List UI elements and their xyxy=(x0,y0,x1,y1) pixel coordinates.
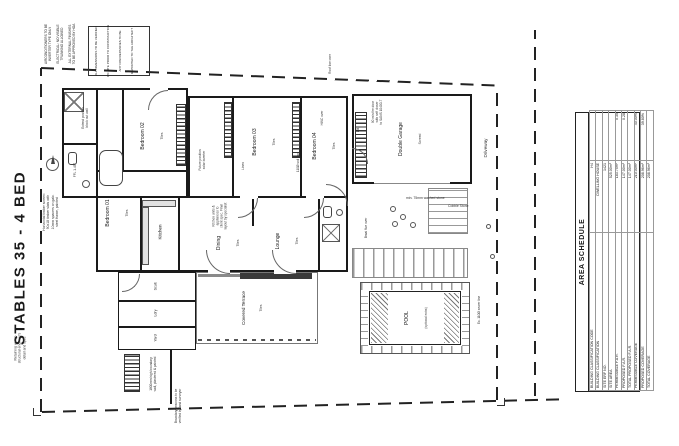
wall xyxy=(178,198,180,270)
area-schedule-title: AREA SCHEDULE xyxy=(576,113,589,391)
wall xyxy=(96,88,98,198)
site-boundary-left xyxy=(40,68,42,412)
room-label-driveway: Driveway xyxy=(483,139,489,158)
micro-note: Future position solar inverter xyxy=(198,149,206,170)
room-name: Bedroom 02 xyxy=(140,122,147,149)
wall xyxy=(62,143,96,145)
north-arrow-needle xyxy=(51,155,55,164)
room-label-garage: Double Garage Screed xyxy=(385,122,435,156)
room-name: Covered Terrace xyxy=(241,291,247,325)
room-label-terrace: Covered Terrace Tiles xyxy=(229,291,275,325)
note-retaining-wall: Retaining wall to structural engineer's … xyxy=(13,333,26,363)
schedule-row: TOTAL COVERAGE208.96m² xyxy=(647,111,653,391)
micro-note: Extend position block out wall xyxy=(81,107,89,129)
room-finish: Tiles xyxy=(236,236,240,250)
basin xyxy=(336,209,343,216)
micro-note: Linen xyxy=(241,162,245,170)
note-washed-stone: min. 75mm washed stone xyxy=(406,196,445,200)
room-finish: Tiles xyxy=(160,122,164,149)
room-label-bedroom04: Bedroom 04 Tiles xyxy=(299,132,349,159)
stepping-stone xyxy=(410,222,416,228)
street-boundary xyxy=(534,30,536,396)
kitchen-counter xyxy=(142,200,176,207)
pool-paver-band xyxy=(462,290,469,346)
room-label-yard: Yard xyxy=(154,334,159,341)
schedule-label: TOTAL COVERAGE xyxy=(647,233,653,391)
note-kitchen-spec: Kitchen units & appliances to client spe… xyxy=(212,203,229,230)
room-finish: Tiles xyxy=(259,291,263,325)
stepping-stone xyxy=(392,221,398,227)
room-finish: Tiles xyxy=(295,233,299,250)
wardrobe xyxy=(176,104,186,166)
stepping-stone xyxy=(390,206,396,212)
room-finish: Tiles xyxy=(332,132,336,159)
room-name: Lounge xyxy=(275,233,282,250)
micro-note: 110Ø soil pipe xyxy=(296,152,300,172)
room-label-lounge: Lounge Tiles xyxy=(262,233,312,250)
room-name: Kitchen xyxy=(157,224,163,239)
pool-paver-band xyxy=(361,290,368,346)
micro-note: DB xyxy=(356,128,360,132)
wall xyxy=(232,96,234,196)
site-boundary-bottom xyxy=(42,398,566,413)
area-schedule-table: AREA SCHEDULE BUILDING CLASSIFICATION CO… xyxy=(575,112,640,392)
note-timber-screen: Horizontal timber screen: 90x18 timber s… xyxy=(42,193,60,231)
room-name: Double Garage xyxy=(398,122,405,156)
room-label-bedroom01: Bedroom 01 Tiles xyxy=(92,199,142,226)
planter xyxy=(124,354,140,392)
note-planting: Boundary beacons to be verified by land … xyxy=(174,389,182,424)
room-finish: Tiles xyxy=(125,199,129,226)
cobble-apron xyxy=(352,248,468,278)
room-name: Bedroom 03 xyxy=(252,128,259,155)
note-hoa-approval: ALL EXTERNAL FINISHES TO BE APPROVED BY … xyxy=(68,24,76,65)
note-airconditioners: AIRCONDITIONERS TO BE INVERTER TYPE ONLY xyxy=(44,24,52,64)
room-name: Bedroom 04 xyxy=(312,132,319,159)
timber-deck xyxy=(428,188,468,234)
room-label-pool: POOL (optional extra) xyxy=(391,307,441,328)
area-schedule-grid: BUILDING CLASSIFICATION CODEH4BUILDING C… xyxy=(589,110,654,391)
room-label-kitchen: Kitchen xyxy=(145,224,174,239)
wall xyxy=(118,326,196,328)
garage-door-opening xyxy=(374,180,450,188)
floor-plan-sheet: STABLES 35 - 4 BED Horizontal timber scr… xyxy=(0,0,679,446)
room-name: POOL xyxy=(404,307,411,328)
room-name: Bedroom 01 xyxy=(105,199,112,226)
bathtub xyxy=(99,150,123,186)
micro-note: Roof line over xyxy=(328,54,332,74)
room-finish: Screed xyxy=(418,122,422,156)
room-finish: (optional extra) xyxy=(424,307,428,328)
wall xyxy=(118,300,196,302)
room-label-dining: Dining Tiles xyxy=(203,236,253,250)
wardrobe xyxy=(224,102,232,158)
schedule-value: 208.96m² xyxy=(647,161,653,233)
garage-stair xyxy=(355,112,367,178)
corner-mark xyxy=(33,408,41,416)
room-label-scullery: Scull. xyxy=(154,282,159,291)
shower xyxy=(322,224,340,242)
micro-note: HWC over xyxy=(320,111,324,126)
room-finish: Tiles xyxy=(272,128,276,155)
note-fire-door: 90 min fire door with self closer to SAN… xyxy=(371,100,383,125)
site-boundary-right xyxy=(496,86,498,400)
room-label-bedroom03: Bedroom 03 Tiles xyxy=(239,128,289,155)
manhole-icon xyxy=(490,254,495,259)
basin xyxy=(82,180,90,188)
room-label-laundry: Ldry xyxy=(154,310,159,317)
garage-door xyxy=(374,183,450,184)
stamp-line: ON SITE PRIOR TO CONSTRUCTION xyxy=(107,25,111,77)
terrace-beam-light xyxy=(198,274,240,277)
pool-paver-band xyxy=(361,283,469,290)
note-cobble-stone: Cobble Stone xyxy=(448,204,469,208)
pool-water-hatch xyxy=(444,293,459,343)
stamp-line: REPORTED TO THE ARCHITECT xyxy=(131,28,135,74)
manhole-icon xyxy=(486,224,491,229)
schedule-ratio xyxy=(647,111,653,161)
micro-note: FFL 1.457 xyxy=(73,163,77,177)
room-label-bedroom02: Bedroom 02 Tiles xyxy=(127,122,177,149)
corner-mark xyxy=(497,398,505,406)
pool-paver-band xyxy=(361,346,469,353)
page-title: STABLES 35 - 4 BED xyxy=(10,171,30,345)
stepping-stone xyxy=(400,214,406,220)
note-sewer: Ex. 110Ø sewer line xyxy=(477,296,481,324)
pool-water-hatch xyxy=(371,293,388,343)
note-boundary-wall: 1800mm high boundary wall, plastered & p… xyxy=(149,357,157,392)
area-schedule: AREA SCHEDULE BUILDING CLASSIFICATION CO… xyxy=(575,112,640,392)
room-name: Dining xyxy=(216,236,223,250)
stamp-line: ALL DIMENSIONS TO BE VERIFIED xyxy=(95,26,99,75)
toilet xyxy=(323,206,332,218)
wall-stub-to-boundary xyxy=(170,350,172,404)
micro-note: Braai flue over xyxy=(364,218,368,239)
stamp-line: ANY DISCREPANCIES TO BE xyxy=(119,31,123,72)
terrace-paving-edge xyxy=(198,339,316,341)
note-trunking: ELECTRICAL: NO VISIBLE TRUNKING ALLOWED xyxy=(56,24,64,63)
